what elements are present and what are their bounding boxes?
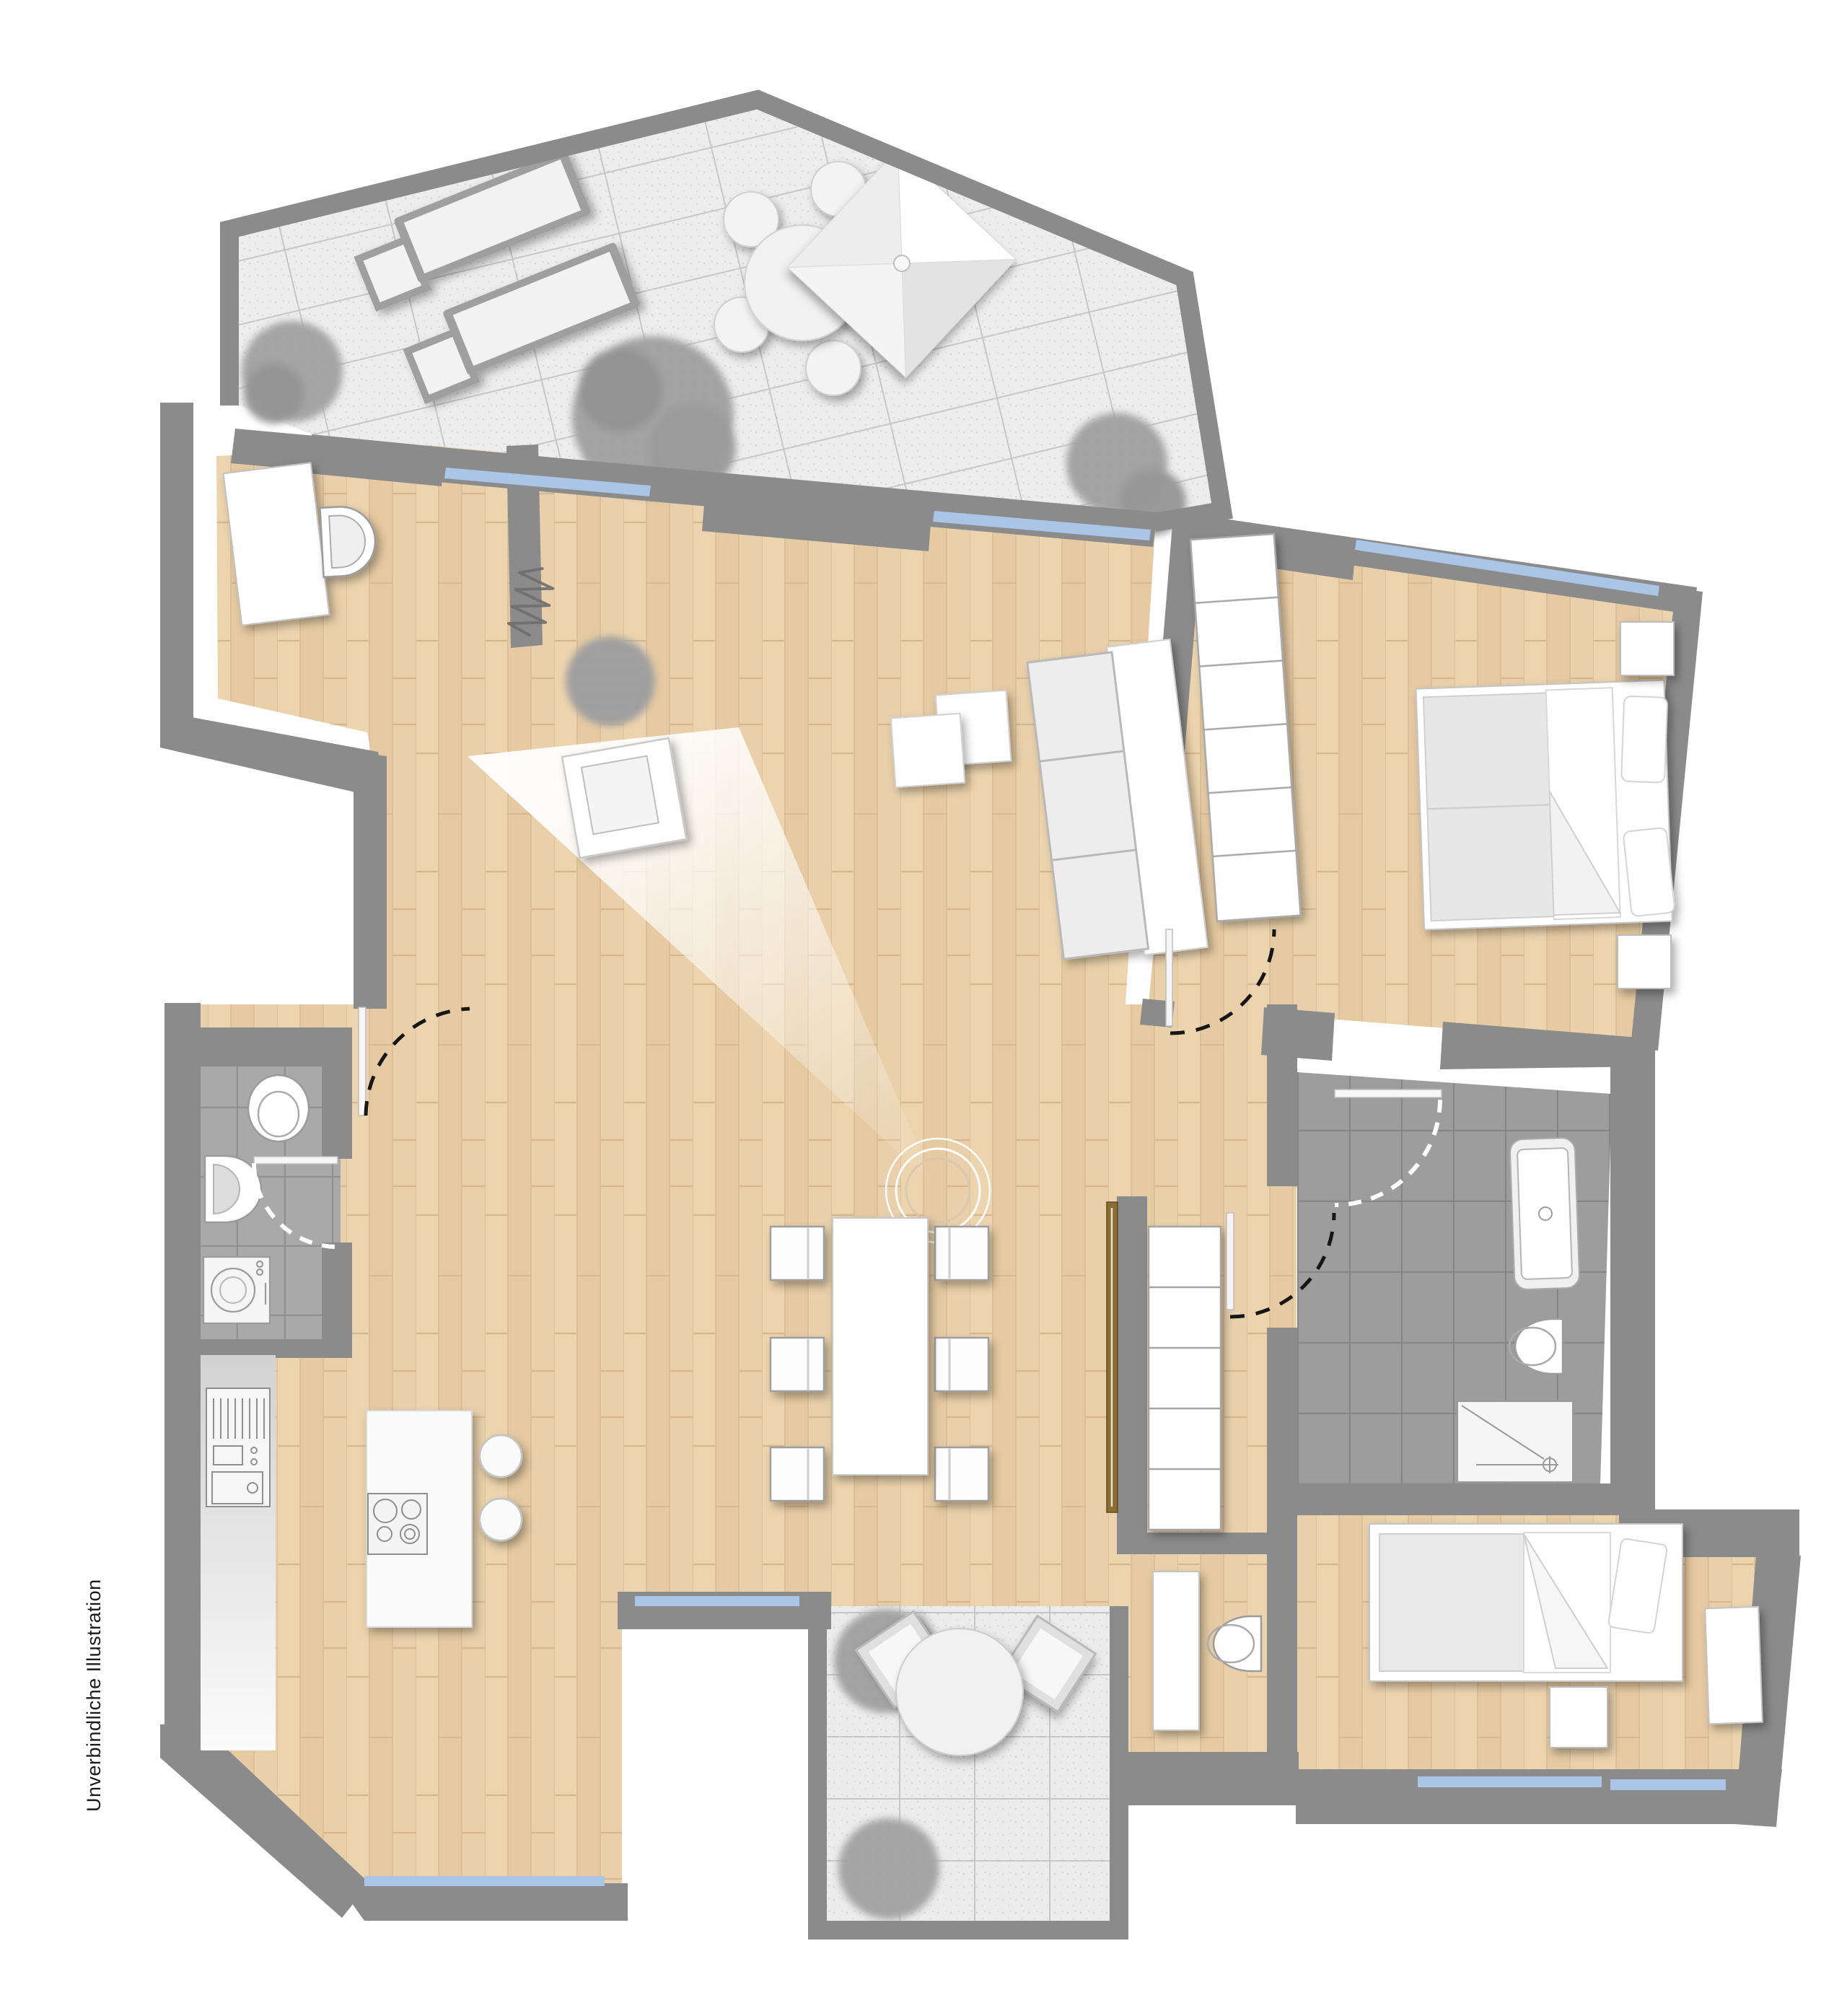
kitchen-island xyxy=(367,1411,472,1627)
vanity-cabinet xyxy=(1153,1572,1199,1730)
sideboard xyxy=(224,463,330,625)
door-leaf xyxy=(1227,1213,1234,1310)
door-leaf xyxy=(254,1157,338,1164)
dining-chair xyxy=(771,1338,824,1391)
window-glazing xyxy=(364,1876,605,1886)
shower xyxy=(1457,1401,1573,1482)
nightstand xyxy=(1620,622,1674,675)
pillow xyxy=(1621,696,1667,783)
window-glazing xyxy=(635,1596,799,1606)
dining-chairs-right xyxy=(935,1227,988,1501)
bar-stool xyxy=(480,1435,522,1477)
door-leaf xyxy=(1166,929,1172,1026)
window-glazing xyxy=(1418,1776,1602,1787)
dining-chair xyxy=(935,1227,988,1280)
potted-plant xyxy=(566,636,655,726)
dining-chairs-left xyxy=(771,1227,824,1501)
washing-machine xyxy=(203,1257,270,1323)
terrace-round-table xyxy=(896,1629,1023,1756)
dining-chair xyxy=(771,1227,824,1280)
dining-chair xyxy=(935,1338,988,1391)
nightstand xyxy=(1550,1687,1607,1748)
window-glazing xyxy=(1610,1779,1726,1790)
bathtub xyxy=(1509,1138,1579,1290)
dining-table xyxy=(833,1218,928,1475)
floor-plan-page: Unverbindliche Illustration xyxy=(0,0,1847,2016)
lower-terrace xyxy=(827,1606,1110,1921)
toilet xyxy=(248,1075,309,1141)
single-bed xyxy=(1369,1524,1683,1681)
disclaimer-text: Unverbindliche Illustration xyxy=(83,1595,113,1812)
terrace-chair xyxy=(806,341,861,395)
door-leaf xyxy=(1335,1090,1442,1097)
dining-chair xyxy=(771,1447,824,1501)
door-leaf xyxy=(359,1007,366,1116)
armchair xyxy=(562,738,686,858)
bush xyxy=(838,1818,939,1919)
coffee-table xyxy=(891,714,965,787)
bar-stool xyxy=(480,1499,522,1541)
pillow xyxy=(1623,828,1675,917)
double-bed xyxy=(1416,680,1675,930)
dining-chair xyxy=(935,1447,988,1501)
oven-unit xyxy=(206,1388,270,1507)
hall-shelf xyxy=(1149,1227,1221,1530)
dresser xyxy=(1705,1607,1763,1724)
floor-plan-drawing xyxy=(0,0,1847,2016)
nightstand xyxy=(1618,935,1671,989)
cooktop xyxy=(368,1494,427,1554)
